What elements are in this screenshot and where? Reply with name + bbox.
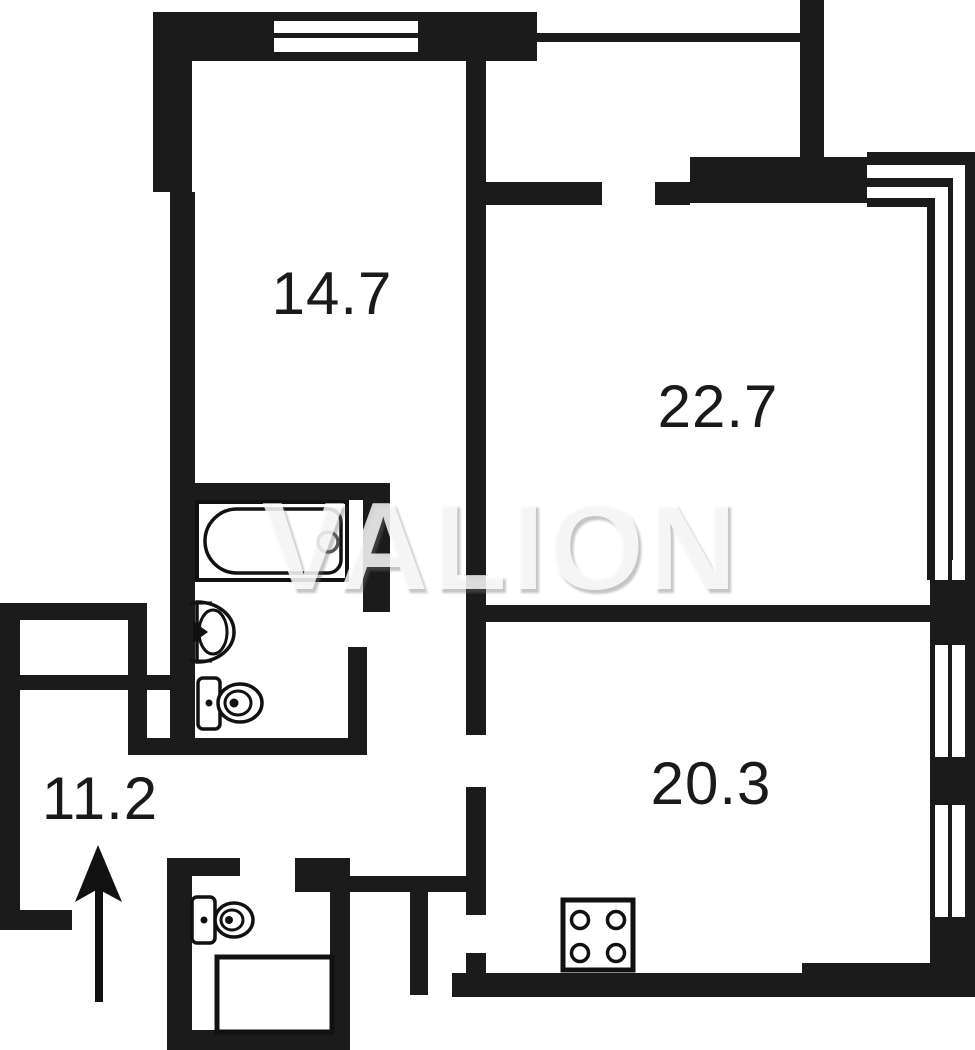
- room-area-label-living: 22.7: [658, 377, 779, 437]
- floor-plan: 14.7 22.7 20.3 11.2 VALION: [0, 0, 975, 1050]
- room-area-label-bedroom: 14.7: [272, 264, 393, 324]
- bathroom-sink-icon: [190, 602, 234, 662]
- room-area-label-kitchen: 20.3: [651, 754, 772, 814]
- stove-icon: [563, 900, 633, 970]
- entrance-arrow-icon: [75, 845, 122, 1002]
- bathroom-toilet-icon: [198, 678, 262, 729]
- wc-toilet-icon: [192, 897, 253, 943]
- shower-tray-icon: [217, 957, 332, 1032]
- fixtures-layer: [0, 0, 975, 1050]
- bathtub-icon: [197, 502, 347, 580]
- room-area-label-hallway: 11.2: [42, 769, 158, 829]
